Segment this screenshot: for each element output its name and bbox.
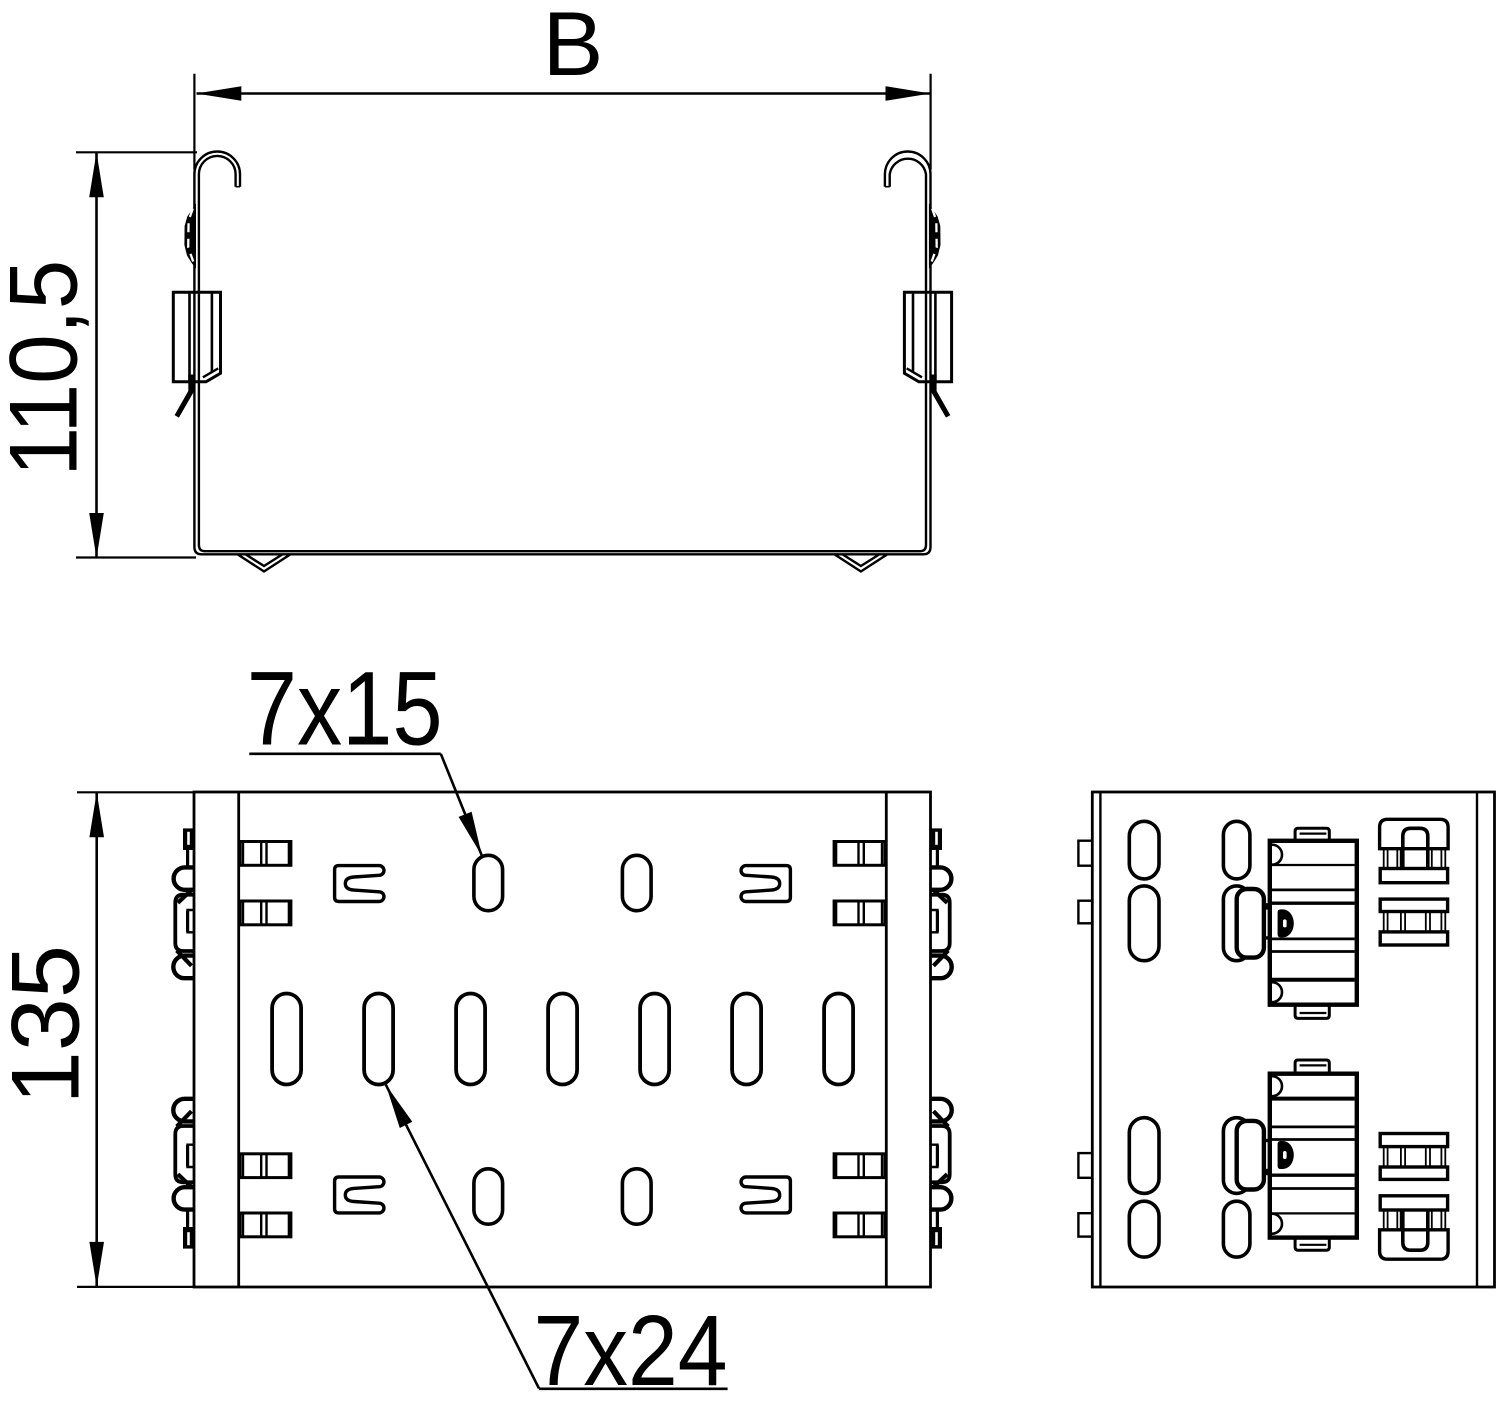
svg-text:135: 135: [0, 945, 100, 1104]
svg-text:7x24: 7x24: [534, 1296, 728, 1408]
svg-text:110,5: 110,5: [0, 260, 97, 477]
svg-text:7x15: 7x15: [247, 649, 443, 767]
svg-text:B: B: [543, 0, 604, 95]
